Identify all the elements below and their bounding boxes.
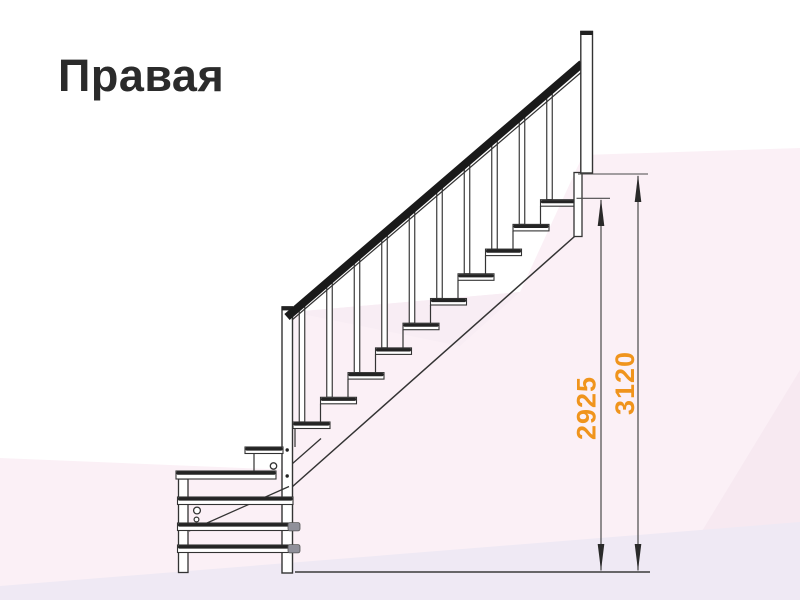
- dimension-label-2925: 2925: [572, 376, 602, 440]
- dimension-label-3120: 3120: [610, 351, 640, 415]
- baluster: [409, 212, 415, 323]
- platform-step-upper: [245, 447, 283, 454]
- tread: [376, 348, 412, 355]
- landing-fascia-board: [574, 173, 582, 237]
- rail-end-cap: [288, 523, 300, 531]
- bolt-hole: [194, 507, 201, 514]
- baluster: [547, 94, 553, 200]
- tread: [486, 249, 522, 256]
- lower-newel-post: [282, 306, 294, 573]
- baluster: [382, 236, 388, 348]
- page-title: Правая: [58, 52, 224, 99]
- platform-rail: [178, 497, 294, 505]
- tread: [513, 224, 549, 231]
- tread: [321, 397, 357, 404]
- bolt-hole: [194, 517, 199, 522]
- platform-rail: [178, 523, 301, 531]
- screw-dot: [286, 474, 289, 477]
- screw-dot: [286, 448, 289, 451]
- baluster: [299, 305, 305, 422]
- upper-newel-post: [580, 31, 593, 173]
- tread: [431, 299, 467, 306]
- tread: [403, 323, 439, 330]
- tread: [348, 373, 384, 380]
- platform-rail: [178, 545, 301, 553]
- baluster: [327, 283, 333, 397]
- tread: [541, 200, 577, 207]
- baluster: [492, 141, 498, 249]
- rail-end-cap: [288, 545, 300, 553]
- baluster: [354, 260, 360, 373]
- bolt-hole: [270, 463, 276, 469]
- platform-step-lower: [176, 471, 276, 479]
- tread: [293, 422, 330, 429]
- tread: [458, 274, 494, 281]
- staircase-drawing-page: 2925 3120 Правая: [0, 0, 800, 600]
- baluster: [464, 165, 470, 274]
- baluster: [437, 189, 443, 299]
- baluster: [519, 118, 525, 225]
